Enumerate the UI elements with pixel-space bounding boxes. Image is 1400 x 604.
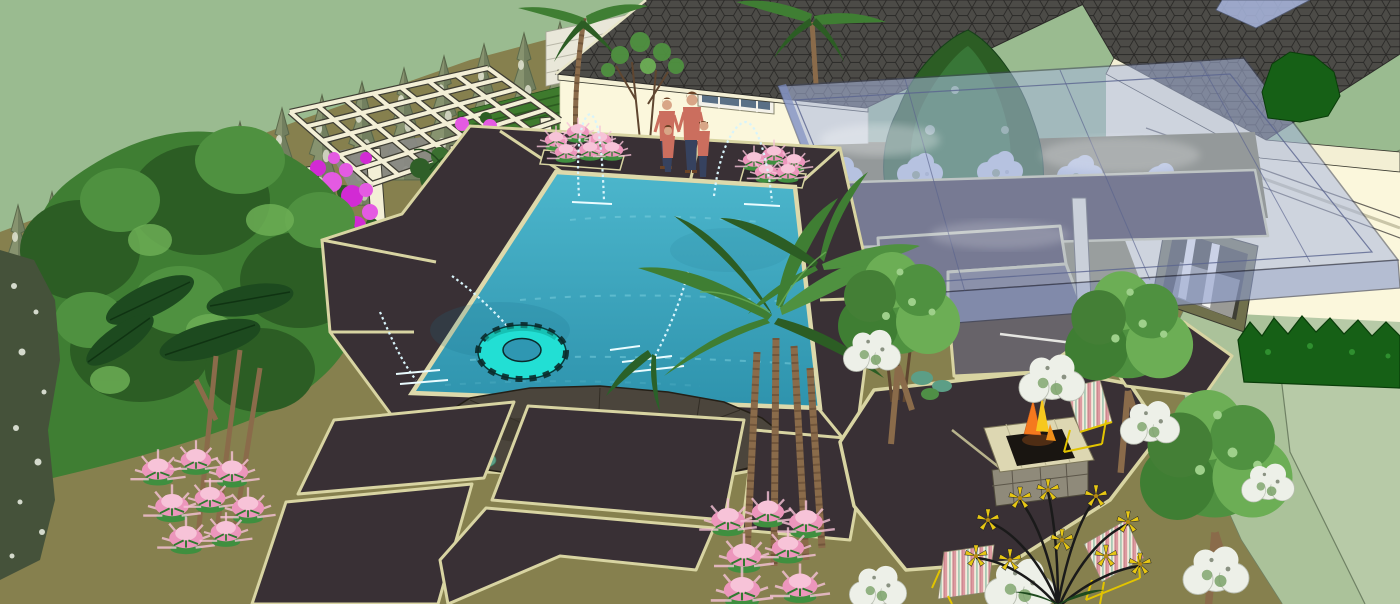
render-viewport[interactable] [0, 0, 1400, 604]
paver [492, 406, 744, 520]
paver [252, 484, 472, 604]
scene-canvas[interactable] [0, 0, 1400, 604]
pool-float [478, 325, 566, 379]
